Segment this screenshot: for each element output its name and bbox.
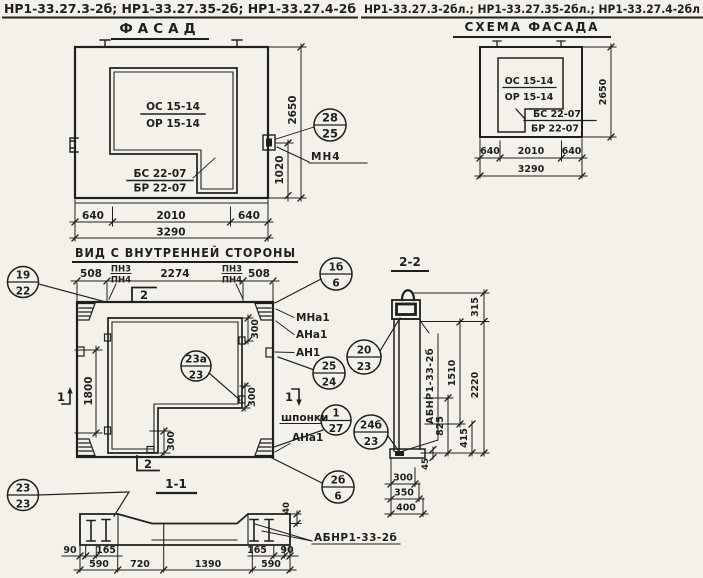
panel-base-core: [395, 451, 404, 456]
dim-640-right: 640: [562, 146, 582, 157]
scheme-window-mark-bottom: ОР 15-14: [505, 92, 554, 103]
leader-line: [276, 127, 314, 139]
dim-1510: 1510: [447, 359, 458, 386]
callout-bottom: 23: [16, 499, 31, 511]
callout-bottom: 23: [357, 361, 372, 373]
dim-3290: 3290: [156, 227, 185, 239]
callout-top: 28: [322, 111, 338, 125]
callout-top: 2б: [331, 475, 346, 487]
corner-key-bottom-right: [255, 439, 273, 456]
title-models-left: НР1-33.27.3-2б; НР1-33.27.35-2б; НР1-33.…: [4, 2, 356, 16]
dim-2220: 2220: [470, 371, 481, 398]
label-an1: АН1: [296, 347, 320, 359]
corner-key-bottom-left: [77, 439, 95, 456]
section-2-label-bottom: 2: [144, 457, 152, 471]
dim-400: 400: [396, 503, 416, 514]
scheme-balcony-mark-top: БС 22-07: [533, 109, 581, 120]
dim-300-top: 300: [250, 319, 261, 339]
scheme-balcony-mark-bottom: БР 22-07: [531, 124, 579, 135]
facade-view: НР1-33.27.3-2б; НР1-33.27.35-2б; НР1-33.…: [3, 2, 367, 241]
section-arrow-down: [296, 400, 301, 407]
label-ana1-2: АНа1: [292, 432, 323, 444]
label-mna1: МНа1: [296, 312, 330, 324]
pn-label-bottom-2: ПН4: [222, 276, 242, 286]
panel-body: [392, 319, 420, 451]
facade-title: ФАСАД: [119, 21, 200, 37]
callout-top: 23: [16, 483, 31, 495]
drawing-sheet: НР1-33.27.3-2б; НР1-33.27.35-2б; НР1-33.…: [0, 0, 703, 578]
section11-title: 1-1: [165, 477, 187, 491]
inner-window-frame-inner: [112, 322, 238, 449]
dim-45: 45: [421, 458, 431, 470]
panel-label: АБНР1-33-2б: [425, 348, 436, 424]
dim-640-left: 640: [480, 146, 500, 157]
leader-line: [275, 352, 294, 353]
section-1-label-left: 1: [57, 390, 65, 404]
inner-title: ВИД С ВНУТРЕННЕЙ СТОРОНЫ: [75, 245, 296, 260]
dim-3290: 3290: [518, 164, 545, 175]
dim-2274: 2274: [160, 268, 189, 280]
callout-divider-leader: [347, 318, 400, 357]
dim-300: 300: [393, 473, 413, 484]
dim-1800: 1800: [83, 376, 95, 405]
facade-balcony-mark-bottom: БР 22-07: [134, 183, 187, 195]
dim-1020: 1020: [274, 155, 286, 184]
dim-40: 40: [282, 502, 292, 514]
dim-90-right: 90: [280, 545, 294, 556]
section-1-label-right: 1: [285, 390, 293, 404]
callout-bottom: 6: [334, 491, 341, 503]
scheme-view: НР1-33.27.3-2бл.; НР1-33.27.35-2бл.; НР1…: [362, 2, 702, 179]
dim-640-left: 640: [82, 210, 104, 222]
corner-key-top-right: [255, 304, 273, 321]
leader-line: [276, 321, 294, 335]
callout-bottom: 22: [16, 286, 31, 298]
label-ana1: АНа1: [296, 329, 327, 341]
dim-lines-top: [71, 281, 279, 301]
leader-line: [275, 444, 290, 453]
dim-508-left: 508: [80, 268, 102, 280]
dim-300-bottom: 300: [166, 431, 177, 451]
scheme-window-mark-top: ОС 15-14: [505, 76, 554, 87]
dim-415: 415: [459, 428, 470, 448]
callout-divider-leader: [275, 274, 352, 303]
anchor-plate-core: [266, 139, 272, 147]
callout-bottom: 27: [329, 423, 344, 435]
drawing-canvas: НР1-33.27.3-2б; НР1-33.27.35-2б; НР1-33.…: [0, 0, 703, 578]
callout-top: 23а: [185, 354, 207, 366]
dim-720: 720: [130, 559, 150, 570]
dim-300-mid: 300: [247, 387, 258, 407]
dim-2010: 2010: [518, 146, 545, 157]
dim-165-right: 165: [247, 545, 267, 556]
callout-bottom: 24: [322, 377, 337, 389]
inner-view: ВИД С ВНУТРЕННЕЙ СТОРОНЫ 508 2274 508 ПН…: [8, 245, 401, 503]
callout-bottom: 25: [322, 127, 338, 141]
callout-top: 24б: [360, 420, 382, 432]
dim-2010: 2010: [156, 210, 185, 222]
callout-bottom: 23: [189, 370, 204, 382]
dim-1390: 1390: [195, 559, 222, 570]
pn-label-bottom: ПН4: [111, 276, 131, 286]
callout-top: 25: [322, 361, 337, 373]
dim-165-left: 165: [96, 545, 116, 556]
callout-bottom: 23: [364, 436, 379, 448]
corner-key-top-left: [77, 304, 95, 321]
dim-2650: 2650: [287, 95, 299, 124]
anchor-label: МН4: [311, 151, 341, 163]
dim-590-1: 590: [89, 559, 109, 570]
leader-line: [276, 309, 294, 318]
dim-315: 315: [470, 297, 481, 317]
panel-label: АБНР1-33-2б: [314, 532, 397, 544]
callout-bottom: 6: [332, 278, 339, 290]
dim-640-right: 640: [238, 210, 260, 222]
dim-590-2: 590: [261, 559, 281, 570]
dim-2650: 2650: [598, 78, 609, 105]
callout-top: 19: [16, 270, 31, 282]
callout-top: 1: [332, 408, 339, 420]
dim-508-right: 508: [248, 268, 270, 280]
panel-head-core: [397, 304, 416, 315]
title-models-right: НР1-33.27.3-2бл.; НР1-33.27.35-2бл.; НР1…: [364, 2, 700, 16]
dim-350: 350: [394, 488, 414, 499]
scheme-title: СХЕМА ФАСАДА: [465, 20, 600, 34]
section-arrow-up: [67, 387, 72, 394]
lifting-loop: [402, 290, 414, 300]
facade-window-mark-top: ОС 15-14: [146, 101, 200, 113]
dim-90-left: 90: [63, 545, 77, 556]
callout-top: 20: [357, 345, 372, 357]
section22-title: 2-2: [399, 255, 421, 269]
section-2-2: 2-2 АБНР1-33-2б 825 1510 415 315 2220 45…: [385, 255, 489, 517]
facade-balcony-mark-top: БС 22-07: [134, 168, 187, 180]
section-2-label-top: 2: [140, 288, 148, 302]
facade-window-mark-bottom: ОР 15-14: [146, 118, 200, 130]
dim-825: 825: [435, 416, 446, 436]
callout-top: 1б: [329, 262, 344, 274]
